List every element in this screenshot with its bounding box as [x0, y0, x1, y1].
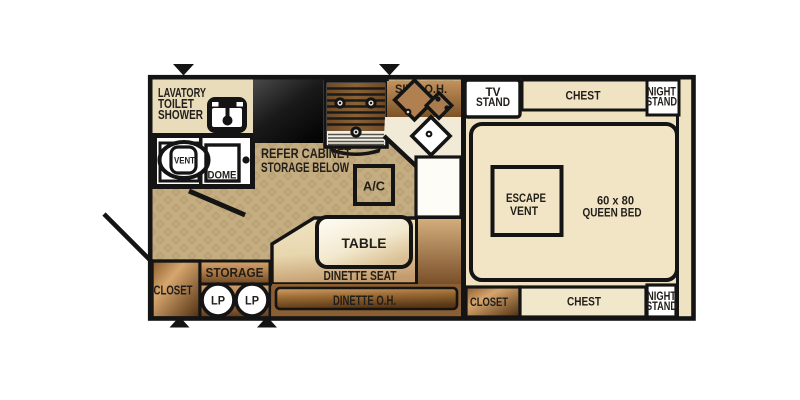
- svg-text:STORAGE BELOW: STORAGE BELOW: [261, 159, 350, 175]
- svg-text:A/C: A/C: [363, 179, 386, 194]
- svg-text:STORAGE: STORAGE: [206, 266, 264, 280]
- svg-text:STAND: STAND: [646, 97, 677, 109]
- svg-text:STAND: STAND: [646, 301, 677, 313]
- svg-text:STAND: STAND: [476, 97, 510, 109]
- svg-text:CLOSET: CLOSET: [154, 284, 193, 298]
- svg-text:VENT: VENT: [510, 204, 539, 218]
- svg-text:CLOSET: CLOSET: [470, 295, 509, 309]
- svg-text:SHOWER: SHOWER: [158, 107, 203, 122]
- svg-text:DOME: DOME: [208, 170, 237, 182]
- svg-text:DINETTE O.H.: DINETTE O.H.: [333, 292, 396, 308]
- svg-text:ESCAPE: ESCAPE: [506, 191, 546, 205]
- svg-text:LP: LP: [245, 296, 259, 308]
- svg-text:QUEEN BED: QUEEN BED: [583, 206, 642, 220]
- svg-text:DINETTE SEAT: DINETTE SEAT: [324, 269, 397, 283]
- svg-text:CHEST: CHEST: [567, 295, 602, 309]
- svg-text:LP: LP: [211, 296, 225, 308]
- svg-text:CHEST: CHEST: [566, 89, 602, 103]
- svg-text:TABLE: TABLE: [342, 235, 387, 251]
- svg-text:VENT: VENT: [174, 156, 195, 167]
